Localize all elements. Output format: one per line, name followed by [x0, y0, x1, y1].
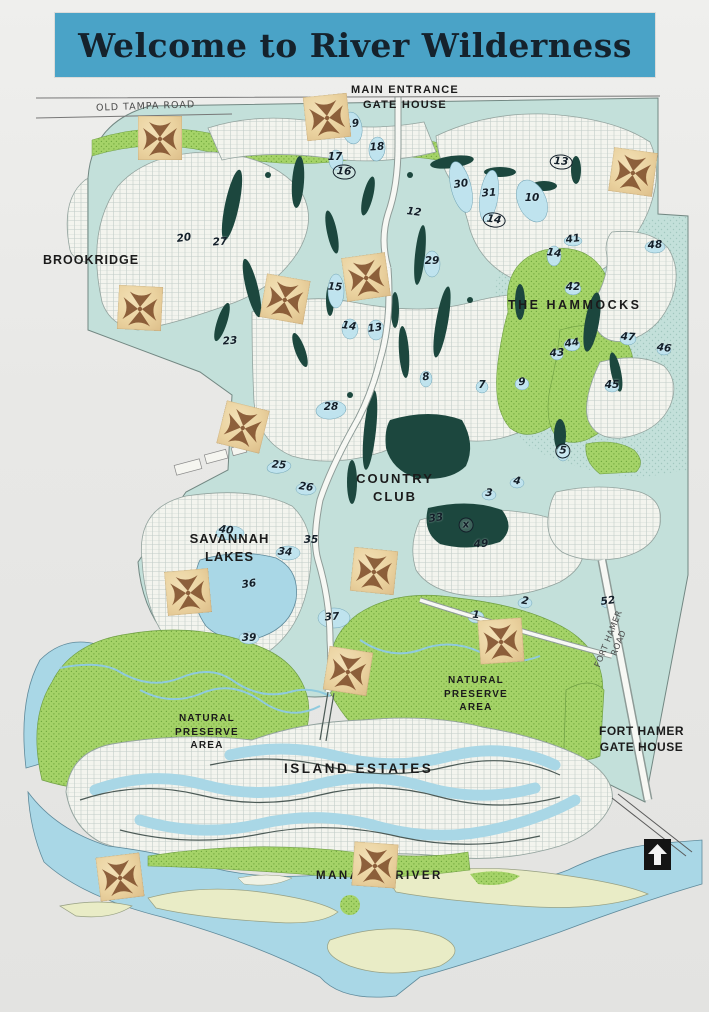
banner: Welcome to River Wilderness: [55, 13, 655, 77]
welcome-sign: Welcome to River Wilderness OLD TAMPA RO…: [0, 0, 709, 1012]
north-arrow-icon: [644, 839, 671, 870]
banner-title: Welcome to River Wilderness: [78, 26, 632, 65]
map-artwork: [0, 0, 709, 1012]
